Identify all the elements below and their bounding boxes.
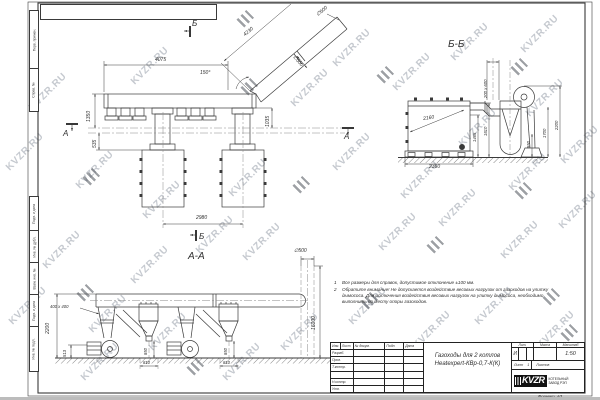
row-prov: Пров. <box>331 357 354 363</box>
title-block: Изм. Лист № докум. Подп. Дата Разраб. Пр… <box>330 342 585 393</box>
note-number: 2 <box>334 287 342 305</box>
col-data: Дата <box>404 343 423 349</box>
note-text: Обратите внимание! Не допускается воздей… <box>342 287 568 305</box>
sheet-label: Лист <box>512 363 525 367</box>
note-item: 1 Все размеры для справок, допустимое от… <box>334 280 568 286</box>
note-item: 2 Обратите внимание! Не допускается возд… <box>334 287 568 305</box>
title-block-signatures: Изм. Лист № докум. Подп. Дата Разраб. Пр… <box>331 343 424 392</box>
margin-box-label: Справ. № <box>29 68 39 112</box>
row-tkontr: Т.контр. <box>331 364 354 370</box>
title-block-right: Лит. И Масса Масштаб 1:50 Лист 1 Листов <box>512 343 584 392</box>
mass-label: Масса <box>534 343 556 348</box>
lit-value: И <box>512 348 519 360</box>
drawing-linework <box>0 0 600 400</box>
scale-value: 1:50 <box>565 348 576 360</box>
col-izm: Изм. <box>331 343 341 349</box>
col-list: Лист <box>341 343 354 349</box>
col-podp: Подп. <box>385 343 404 349</box>
sheets-label: Листов <box>534 363 551 367</box>
corner-reference-box <box>40 4 217 20</box>
company-name: КОТЕЛЬНЫЙ ЗАВОД РЭП <box>549 377 569 385</box>
document-title-line2: Heatexpert-КВр-0,7-К(К) <box>435 360 501 368</box>
document-title: Газоходы для 2 котлов Heatexpert-КВр-0,7… <box>424 343 512 392</box>
margin-box-label: Взам. инв. № <box>29 262 39 296</box>
note-text: Все размеры для справок, допустимое откл… <box>342 280 474 286</box>
kvzr-logo: KVZR <box>514 375 547 387</box>
margin-box-label: Подп. и дата <box>29 294 39 328</box>
margin-box-label: Перв. примен. <box>29 10 39 70</box>
note-number: 1 <box>334 280 342 286</box>
row-utv: Утв. <box>331 386 354 392</box>
row-razrab: Разраб. <box>331 350 354 356</box>
document-title-line1: Газоходы для 2 котлов <box>435 352 500 360</box>
row-nkontr: Н.контр. <box>331 379 354 385</box>
margin-box-label: Подп. и дата <box>29 196 39 232</box>
col-docnum: № докум. <box>354 343 386 349</box>
notes-block: 1 Все размеры для справок, допустимое от… <box>334 280 568 306</box>
margin-box-label: Инв. № дубл. <box>29 230 39 264</box>
row-empty <box>331 372 354 378</box>
drawing-sheet: KVZR.RUKVZR.RUKVZR.RUKVZR.RUKVZR.RUKVZR.… <box>0 0 600 400</box>
margin-box-label: Инв. № подл. <box>29 326 39 372</box>
